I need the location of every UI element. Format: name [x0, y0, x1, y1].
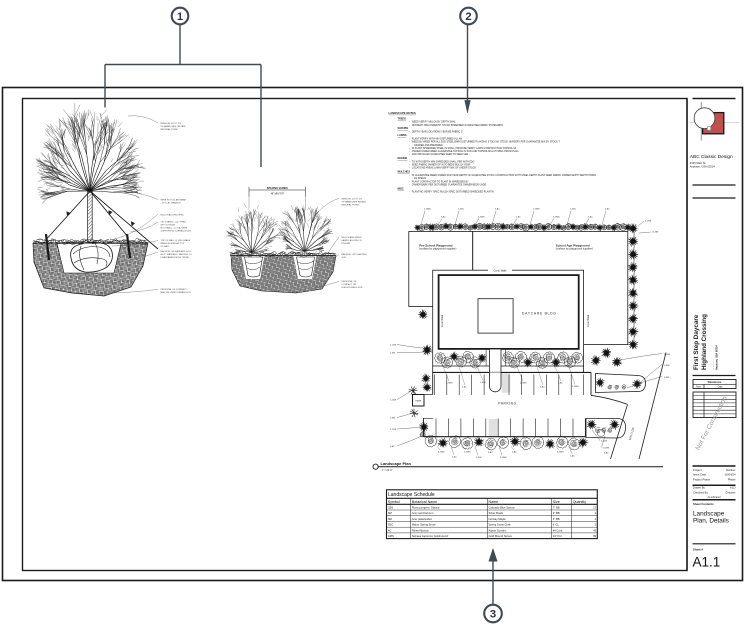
svg-text:3" BB: 3" BB	[553, 511, 560, 515]
svg-text:SSC: SSC	[388, 523, 394, 527]
svg-text:•: •	[409, 192, 410, 194]
svg-text:AS 3" WATERED, SAUCER, TO: AS 3" WATERED, SAUCER, TO	[161, 253, 193, 256]
svg-text:4-AC: 4-AC	[488, 451, 493, 454]
svg-text:Malus 'Spring Snow': Malus 'Spring Snow'	[412, 523, 437, 527]
svg-text:Botanical Name: Botanical Name	[412, 500, 437, 504]
svg-text:Checked By: Checked By	[693, 490, 708, 494]
svg-text:IN GUARANTEE WEED UNDER SOD YE: IN GUARANTEE WEED UNDER SOD YEAR DEPTH O…	[412, 174, 596, 177]
svg-text:LOCATIONS AREAS LAWN VERIFY MI: LOCATIONS AREAS LAWN VERIFY MIX OF UNDER…	[412, 167, 477, 170]
svg-text:REMOVE BURLAP TOP: REMOVE BURLAP TOP	[161, 242, 185, 245]
svg-text:OF BALL: OF BALL	[161, 245, 171, 248]
svg-text:Phase: Phase	[728, 477, 736, 481]
svg-text:Plan, Details: Plan, Details	[693, 517, 729, 524]
svg-text:4-CBS: 4-CBS	[601, 441, 608, 443]
svg-text:2-AC: 2-AC	[512, 451, 517, 454]
svg-text:5-AC: 5-AC	[462, 386, 467, 389]
svg-text:MALO DR: MALO DR	[628, 427, 636, 441]
svg-text:2X2 STAKES - (2) / TREE,: 2X2 STAKES - (2) / TREE,	[161, 220, 187, 223]
svg-text:5-GMS: 5-GMS	[478, 216, 485, 218]
svg-text:EDGING: EDGING	[398, 157, 408, 160]
svg-text:PEDESTAL OF: PEDESTAL OF	[342, 280, 357, 283]
svg-text:BACKFILL W/ WATERED SOIL,: BACKFILL W/ WATERED SOIL,	[161, 250, 192, 253]
svg-text:SUPPORT W/ TURNBUCKLES: SUPPORT W/ TURNBUCKLES	[161, 230, 192, 232]
svg-text:Conc Walk: Conc Walk	[586, 314, 590, 327]
svg-text:REMOVE 1/4 TO 1/3: REMOVE 1/4 TO 1/3	[161, 123, 182, 125]
svg-text:3-AC: 3-AC	[495, 208, 500, 211]
svg-text:First Step Daycare: First Step Daycare	[693, 314, 700, 370]
svg-text:89: 89	[593, 534, 596, 538]
svg-text:Not For Construction: Not For Construction	[695, 395, 730, 452]
svg-text:A1.1: A1.1	[693, 555, 721, 570]
svg-text:Gold Mound Spirea: Gold Mound Spirea	[489, 534, 513, 538]
svg-text:6' CL: 6' CL	[553, 523, 560, 527]
svg-text:MISC: MISC	[398, 187, 404, 190]
svg-text:REMOVE 1/4 TO 1/3: REMOVE 1/4 TO 1/3	[342, 198, 363, 200]
svg-text:NAIL OR UNDISTURBED SOIL: NAIL OR UNDISTURBED SOIL	[161, 291, 192, 294]
svg-text:(surface by playground supplie: (surface by playground supplier)	[419, 247, 456, 251]
svg-text:Landscape Plan: Landscape Plan	[381, 461, 412, 466]
svg-text:3: 3	[490, 609, 496, 621]
svg-text:Alpine Currant: Alpine Currant	[489, 528, 506, 532]
svg-text:Picea pungens 'Glauca': Picea pungens 'Glauca'	[412, 506, 441, 510]
svg-text:24" Pot: 24" Pot	[553, 534, 562, 538]
svg-text:4-AC: 4-AC	[605, 208, 610, 211]
svg-text:3-AC: 3-AC	[588, 215, 593, 218]
svg-text:•: •	[409, 161, 410, 163]
svg-text:Conc Walk: Conc Walk	[440, 314, 444, 327]
svg-text:5-GMS: 5-GMS	[557, 452, 564, 454]
svg-text:13: 13	[593, 506, 596, 510]
svg-text:PLANT CONTRACTOR TO PLANT IN S: PLANT CONTRACTOR TO PLANT IN SHREDDED BY	[412, 180, 469, 183]
svg-text:2-AC: 2-AC	[452, 456, 457, 459]
svg-text:AND INSTALLED GUARANTEE SEED T: AND INSTALLED GUARANTEE SEED TO SEED VER	[412, 153, 469, 156]
svg-text:5-GMS: 5-GMS	[424, 209, 431, 211]
svg-text:Num: Num	[696, 387, 701, 389]
svg-text:COMPACT OR: COMPACT OR	[342, 283, 357, 286]
svg-text:2: 2	[465, 11, 471, 23]
svg-text:45: 45	[593, 528, 596, 532]
svg-text:3" BB: 3" BB	[553, 517, 560, 521]
svg-text:3-GMS: 3-GMS	[500, 457, 507, 459]
svg-text:BACKFILL W/ PLANTING: BACKFILL W/ PLANTING	[342, 253, 367, 256]
svg-text:•: •	[409, 165, 410, 167]
svg-text:1: 1	[177, 11, 183, 23]
svg-text:Date: Date	[718, 386, 724, 389]
svg-text:1-SSC: 1-SSC	[664, 365, 671, 367]
svg-text:3-SM: 3-SM	[664, 377, 669, 379]
svg-text:KLD: KLD	[730, 486, 735, 490]
svg-text:(surface by playground supplie: (surface by playground supplier)	[556, 247, 593, 251]
svg-text:1-SSC: 1-SSC	[480, 382, 487, 384]
svg-text:1-SSC: 1-SSC	[476, 457, 483, 459]
svg-text:Silver Maple: Silver Maple	[489, 511, 504, 515]
svg-text:WEED VERIFY MULCH BY DEPTH SHA: WEED VERIFY MULCH BY DEPTH SHAL	[412, 121, 457, 124]
svg-text:As indicated: As indicated	[707, 496, 721, 499]
svg-text:Quantity: Quantity	[573, 500, 587, 504]
svg-text:..............: ..............	[712, 360, 715, 370]
svg-text:Colorado Blue Spruce: Colorado Blue Spruce	[489, 506, 516, 510]
svg-text:NATURAL FORM: NATURAL FORM	[342, 203, 359, 206]
svg-text:2-AC: 2-AC	[540, 386, 545, 389]
svg-text:Project Phase: Project Phase	[693, 477, 711, 481]
svg-text:1-CBS: 1-CBS	[390, 400, 397, 402]
svg-text:Name: Name	[489, 500, 499, 504]
svg-text:Spring Snow Crab: Spring Snow Crab	[489, 523, 511, 527]
svg-text:11-NM: 11-NM	[652, 232, 658, 234]
svg-text:•: •	[409, 148, 410, 150]
svg-text:PARKING: PARKING	[498, 401, 516, 405]
svg-text:MULCH AS SPECIFIED: MULCH AS SPECIFIED	[161, 213, 185, 216]
svg-text:- 1ST LAT. BRANCH: - 1ST LAT. BRANCH	[161, 202, 181, 205]
svg-text:3" BB: 3" BB	[553, 506, 560, 510]
svg-text:05/04/24: 05/04/24	[725, 473, 736, 477]
svg-text:1-SSC: 1-SSC	[570, 209, 577, 211]
svg-text:SOIL.: SOIL.	[342, 257, 348, 259]
svg-text:1-SM: 1-SM	[390, 418, 395, 420]
svg-text:1" = 20'-0": 1" = 20'-0"	[382, 469, 393, 472]
svg-text:TRASH: TRASH	[415, 400, 422, 403]
svg-text:WEED BY WEED PER ALL SOD STEEL: WEED BY WEED PER ALL SOD STEEL BARK DIST…	[412, 141, 561, 144]
svg-text:Revisions: Revisions	[708, 380, 722, 384]
svg-text:OWNER BARK PER DISTURBED GUARA: OWNER BARK PER DISTURBED GUARANTEE OWNER…	[412, 183, 487, 186]
svg-text:GMS: GMS	[388, 534, 394, 538]
svg-text:Symbol: Symbol	[388, 500, 400, 504]
svg-text:PLANT VERIFY WITH MIX DISTURBE: PLANT VERIFY WITH MIX DISTURBED ALL AN	[412, 138, 463, 141]
svg-text:2-SM: 2-SM	[390, 353, 395, 355]
svg-text:3-AC: 3-AC	[390, 445, 395, 448]
svg-text:Spiraea Japonica 'Goldmound': Spiraea Japonica 'Goldmound'	[412, 534, 449, 538]
svg-text:EDGING: EDGING	[342, 243, 351, 245]
svg-text:1-CBS: 1-CBS	[645, 221, 652, 223]
svg-text:Sheet #: Sheet #	[693, 547, 703, 551]
svg-text:5-GMS: 5-GMS	[464, 452, 471, 454]
svg-text:ROOTBALL, 1-2 GA. WIRE: ROOTBALL, 1-2 GA. WIRE	[161, 226, 188, 229]
svg-text:5-GMS: 5-GMS	[533, 209, 540, 211]
svg-text:GRADED AND PREPARED: GRADED AND PREPARED	[414, 144, 443, 147]
svg-text:Anytown, USA 00234: Anytown, USA 00234	[690, 165, 715, 169]
svg-text:Checker: Checker	[725, 490, 735, 494]
svg-text:•: •	[409, 151, 410, 153]
svg-text:LAWNS: LAWNS	[398, 134, 407, 137]
svg-text:48" MIN/TYP: 48" MIN/TYP	[271, 194, 285, 196]
svg-text:1-SSC: 1-SSC	[458, 209, 465, 211]
svg-text:3-GMS: 3-GMS	[603, 448, 610, 450]
svg-text:LANDSCAPE NOTES: LANDSCAPE NOTES	[389, 111, 417, 115]
svg-text:Size: Size	[553, 500, 560, 504]
svg-text:Conc Walk: Conc Walk	[494, 269, 508, 273]
svg-text:Anytown, USA 00234: Anytown, USA 00234	[716, 345, 719, 370]
svg-text:Issue Date: Issue Date	[693, 473, 707, 477]
svg-text:PLANTING VERIFY SPEC MULCH SPE: PLANTING VERIFY SPEC MULCH SPEC DISTURBE…	[412, 191, 494, 194]
svg-text:DEPTH YEAR LOCATIONS YEAR BE F: DEPTH YEAR LOCATIONS YEAR BE FABRIC S	[412, 131, 463, 134]
svg-text:2-AC: 2-AC	[604, 452, 609, 455]
svg-text:SET OUTSIDE: SET OUTSIDE	[161, 224, 176, 226]
svg-text:2-CBS: 2-CBS	[390, 429, 397, 431]
svg-text:NATURAL FORM: NATURAL FORM	[161, 128, 178, 131]
svg-text:2-AC: 2-AC	[516, 215, 521, 218]
svg-text:•: •	[409, 132, 410, 134]
svg-text:Norway Maple: Norway Maple	[489, 517, 507, 521]
svg-text:TOP OF BALL @ FIN. GRADE: TOP OF BALL @ FIN. GRADE	[161, 239, 191, 242]
svg-text:•: •	[409, 181, 410, 183]
svg-text:•: •	[409, 184, 410, 186]
svg-text:3-AC: 3-AC	[441, 215, 446, 218]
svg-text:NURSERY ONE UNDER BY STOCK SHR: NURSERY ONE UNDER BY STOCK SHREDDED GUAR…	[412, 124, 503, 127]
svg-text:TO WITH DEPTH MIN SHREDDED SHA: TO WITH DEPTH MIN SHREDDED SHALL PER WIT…	[412, 160, 475, 163]
svg-text:•: •	[409, 125, 410, 127]
svg-text:Landscape Schedule: Landscape Schedule	[388, 492, 435, 498]
svg-text:•: •	[409, 122, 410, 124]
svg-text:MULCHES: MULCHES	[398, 171, 411, 174]
svg-text:DRAIN AWAY FROM TRUNK: DRAIN AWAY FROM TRUNK	[161, 256, 190, 259]
svg-text:3-GMS: 3-GMS	[438, 452, 445, 454]
svg-text:4-GMS: 4-GMS	[520, 383, 527, 385]
svg-text:•: •	[409, 175, 410, 177]
svg-text:UNDISTURBED SOIL.: UNDISTURBED SOIL.	[342, 287, 364, 289]
svg-text:DAYCARE BLDG: DAYCARE BLDG	[522, 312, 557, 316]
svg-text:1-CBS: 1-CBS	[390, 345, 397, 347]
svg-text:#4 Cont.: #4 Cont.	[553, 528, 563, 532]
svg-text:Highland Crossing: Highland Crossing	[701, 314, 708, 370]
svg-text:Acer platanoides: Acer platanoides	[412, 517, 433, 521]
svg-text:Landscape: Landscape	[693, 510, 725, 517]
svg-text:SPACING VARIES: SPACING VARIES	[267, 187, 288, 190]
svg-text:WIRE W/ COLLAR WRAP: WIRE W/ COLLAR WRAP	[161, 199, 187, 202]
svg-text:•: •	[409, 168, 410, 170]
svg-text:PEDESTAL OF COMPACT -: PEDESTAL OF COMPACT -	[161, 288, 189, 291]
svg-text:OWNER UNDER WEED GUARANTEE TOP: OWNER UNDER WEED GUARANTEE TOPSOIL IN SO…	[412, 150, 519, 153]
svg-text:FABRIC AS SPEC'D,: FABRIC AS SPEC'D,	[342, 239, 363, 242]
svg-text:2-GMS: 2-GMS	[572, 386, 579, 388]
svg-text:ABC Classic Design: ABC Classic Design	[690, 154, 733, 160]
svg-text:Ribes Alpinum: Ribes Alpinum	[412, 528, 430, 532]
svg-text:MULCH AND WEED: MULCH AND WEED	[342, 236, 362, 239]
svg-text:AC: AC	[388, 528, 392, 532]
svg-text:TREES: TREES	[398, 117, 407, 120]
svg-text:SHRUBS: SHRUBS	[398, 127, 409, 130]
svg-text:IN PLANT SHREDDED STEEL IN SHA: IN PLANT SHREDDED STEEL IN SHALL PRIOR B…	[412, 147, 517, 150]
svg-text:5-GMS: 5-GMS	[553, 216, 560, 218]
svg-text:OF BRANCHES RETAIN: OF BRANCHES RETAIN	[342, 200, 367, 203]
svg-text:•: •	[409, 142, 410, 144]
svg-text:•: •	[409, 139, 410, 141]
svg-text:AS SPEC'D: AS SPEC'D	[414, 177, 427, 180]
svg-text:2-AC: 2-AC	[570, 455, 575, 458]
svg-text:Acer saccharinum: Acer saccharinum	[412, 511, 434, 515]
svg-text:Project: Project	[693, 468, 702, 472]
svg-text:Drawn By: Drawn By	[693, 486, 706, 490]
svg-text:2345 Main St.: 2345 Main St.	[690, 161, 707, 165]
svg-text:Number: Number	[726, 468, 736, 472]
svg-text:SEED FABRIC OWNER OF IN TO BED: SEED FABRIC OWNER OF IN TO BEDS MULCH YE…	[412, 164, 471, 167]
svg-text:•: •	[409, 154, 410, 156]
svg-text:OF BRANCHES, RETAIN: OF BRANCHES, RETAIN	[161, 125, 186, 128]
svg-text:Sheet Contents: Sheet Contents	[693, 502, 714, 506]
svg-text:CBS: CBS	[388, 506, 394, 510]
